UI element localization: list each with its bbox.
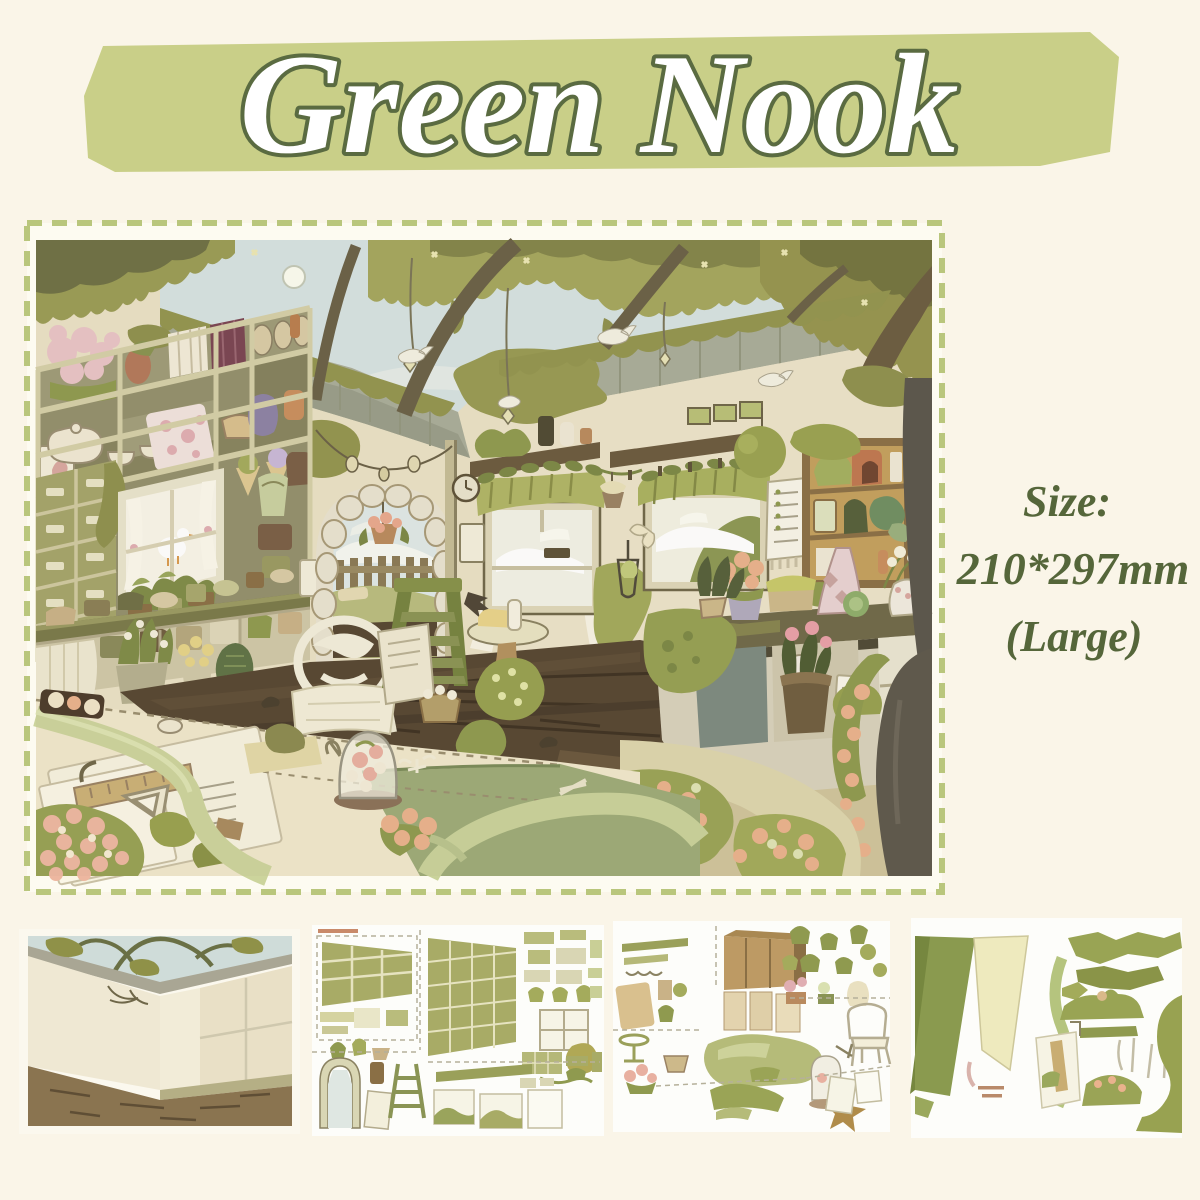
svg-text:Size:: Size: (1023, 477, 1111, 526)
svg-text:Green Nook: Green Nook (240, 25, 959, 183)
svg-text:(Large): (Large) (1006, 612, 1143, 661)
svg-text:210*297mm: 210*297mm (956, 543, 1190, 594)
